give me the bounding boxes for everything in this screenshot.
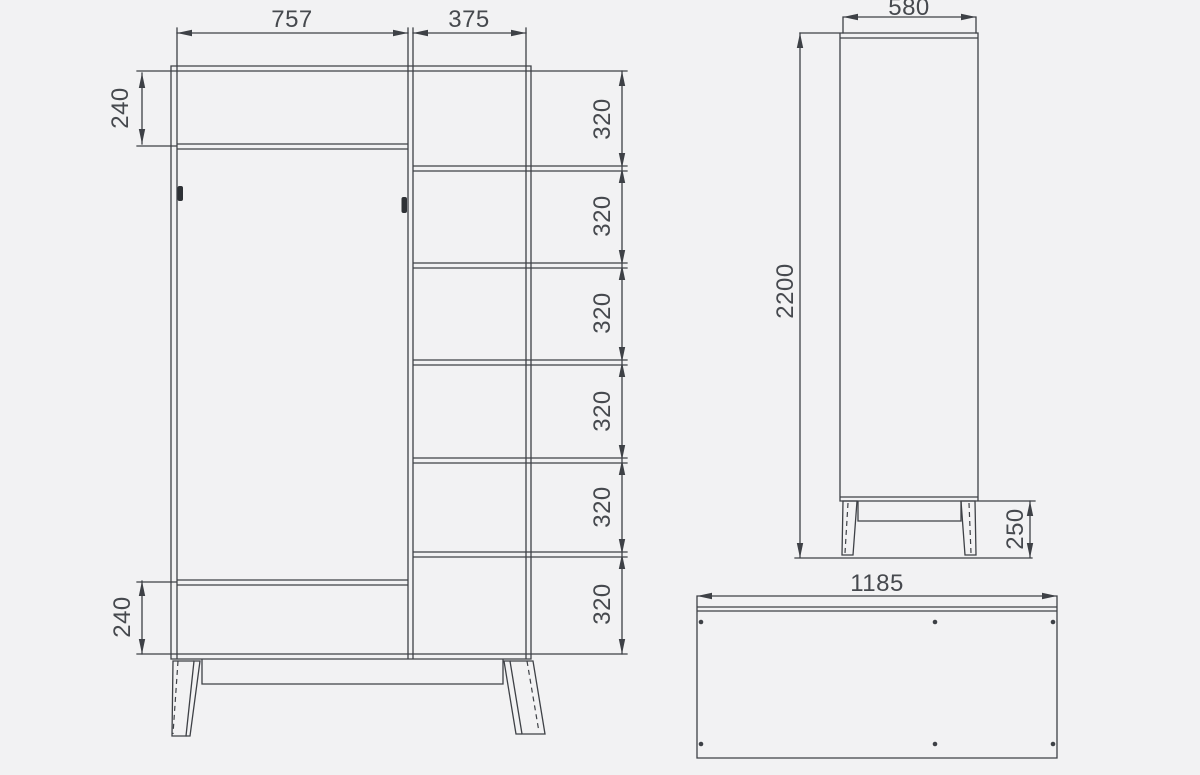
screw-hole-dot bbox=[699, 620, 704, 625]
side-view bbox=[795, 14, 1035, 558]
front-legs bbox=[172, 661, 545, 736]
dim-shelf-spacing-1-label: 320 bbox=[591, 98, 615, 140]
dim-front-width-left-label: 757 bbox=[271, 8, 313, 32]
dim-bottom-width-label: 1185 bbox=[850, 572, 904, 596]
side-legs bbox=[842, 501, 976, 555]
door-handle-left-icon bbox=[178, 186, 184, 201]
dim-shelf-spacing-6-label: 320 bbox=[591, 583, 615, 625]
front-view bbox=[137, 28, 627, 736]
dim-shelf-spacing-4-label: 320 bbox=[591, 390, 615, 432]
screw-hole-dot bbox=[933, 742, 938, 747]
side-legs-hatch bbox=[845, 503, 971, 553]
front-legs-hatch bbox=[173, 661, 539, 734]
screw-hole-dot bbox=[1051, 620, 1056, 625]
dim-shelf-spacing-5-label: 320 bbox=[591, 486, 615, 528]
bottom-view bbox=[697, 593, 1057, 758]
side-cabinet-lines bbox=[800, 33, 1035, 521]
front-cabinet-lines bbox=[137, 28, 627, 684]
side-arrowheads bbox=[797, 14, 1033, 558]
screw-hole-dot bbox=[1051, 742, 1056, 747]
technical-drawing-canvas: 757 375 240 240 320 320 320 320 320 320 … bbox=[0, 0, 1200, 775]
screw-hole-dot bbox=[699, 742, 704, 747]
dim-front-width-right-label: 375 bbox=[448, 8, 490, 32]
door-handle-right-icon bbox=[402, 197, 408, 213]
dim-side-height-label: 2200 bbox=[774, 263, 798, 318]
dim-shelf-spacing-2-label: 320 bbox=[591, 195, 615, 237]
side-dimension-lines bbox=[795, 17, 1032, 558]
dim-front-bottom-panel-label: 240 bbox=[111, 596, 135, 638]
dim-side-leg-height-label: 250 bbox=[1004, 508, 1028, 550]
bottom-panel-lines bbox=[697, 596, 1057, 758]
front-dimension-lines bbox=[142, 33, 622, 654]
front-arrowheads bbox=[139, 30, 625, 654]
screw-hole-dot bbox=[933, 620, 938, 625]
dim-front-top-panel-label: 240 bbox=[109, 87, 133, 129]
screw-hole-dots bbox=[699, 620, 1056, 747]
dim-side-depth-label: 580 bbox=[888, 0, 930, 20]
dim-shelf-spacing-3-label: 320 bbox=[591, 292, 615, 334]
